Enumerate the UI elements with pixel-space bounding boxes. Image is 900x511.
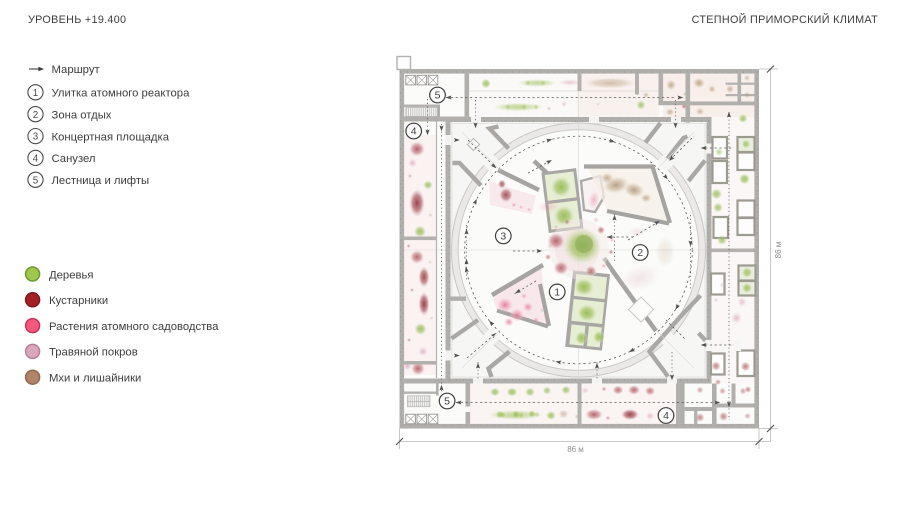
- svg-text:Лестница и лифты: Лестница и лифты: [52, 175, 150, 187]
- svg-text:4: 4: [411, 126, 417, 138]
- svg-text:4: 4: [663, 410, 669, 422]
- svg-text:3: 3: [500, 231, 506, 243]
- svg-text:Маршрут: Маршрут: [52, 64, 100, 76]
- svg-text:Кустарники: Кустарники: [49, 295, 108, 307]
- svg-text:Концертная площадка: Концертная площадка: [52, 131, 170, 143]
- svg-text:1: 1: [554, 287, 560, 299]
- svg-text:Травяной покров: Травяной покров: [49, 347, 138, 359]
- svg-text:УРОВЕНЬ +19.400: УРОВЕНЬ +19.400: [28, 14, 126, 26]
- svg-text:2: 2: [637, 247, 643, 259]
- svg-text:5: 5: [33, 175, 39, 186]
- svg-text:5: 5: [435, 90, 441, 102]
- svg-text:1: 1: [33, 88, 38, 99]
- svg-text:Санузел: Санузел: [52, 153, 96, 165]
- svg-text:Зона отдых: Зона отдых: [52, 109, 112, 121]
- svg-text:Растения атомного садоводства: Растения атомного садоводства: [49, 321, 219, 333]
- svg-text:86 м: 86 м: [774, 242, 783, 259]
- svg-text:5: 5: [444, 396, 450, 408]
- svg-text:СТЕПНОЙ ПРИМОРСКИЙ КЛИМАТ: СТЕПНОЙ ПРИМОРСКИЙ КЛИМАТ: [692, 13, 878, 26]
- svg-text:Деревья: Деревья: [49, 269, 94, 281]
- svg-text:3: 3: [33, 132, 39, 143]
- svg-text:Улитка атомного реактора: Улитка атомного реактора: [52, 88, 191, 100]
- svg-text:4: 4: [33, 154, 39, 165]
- svg-text:86 м: 86 м: [567, 445, 584, 454]
- svg-text:2: 2: [33, 110, 38, 121]
- svg-text:Мхи и лишайники: Мхи и лишайники: [49, 373, 141, 385]
